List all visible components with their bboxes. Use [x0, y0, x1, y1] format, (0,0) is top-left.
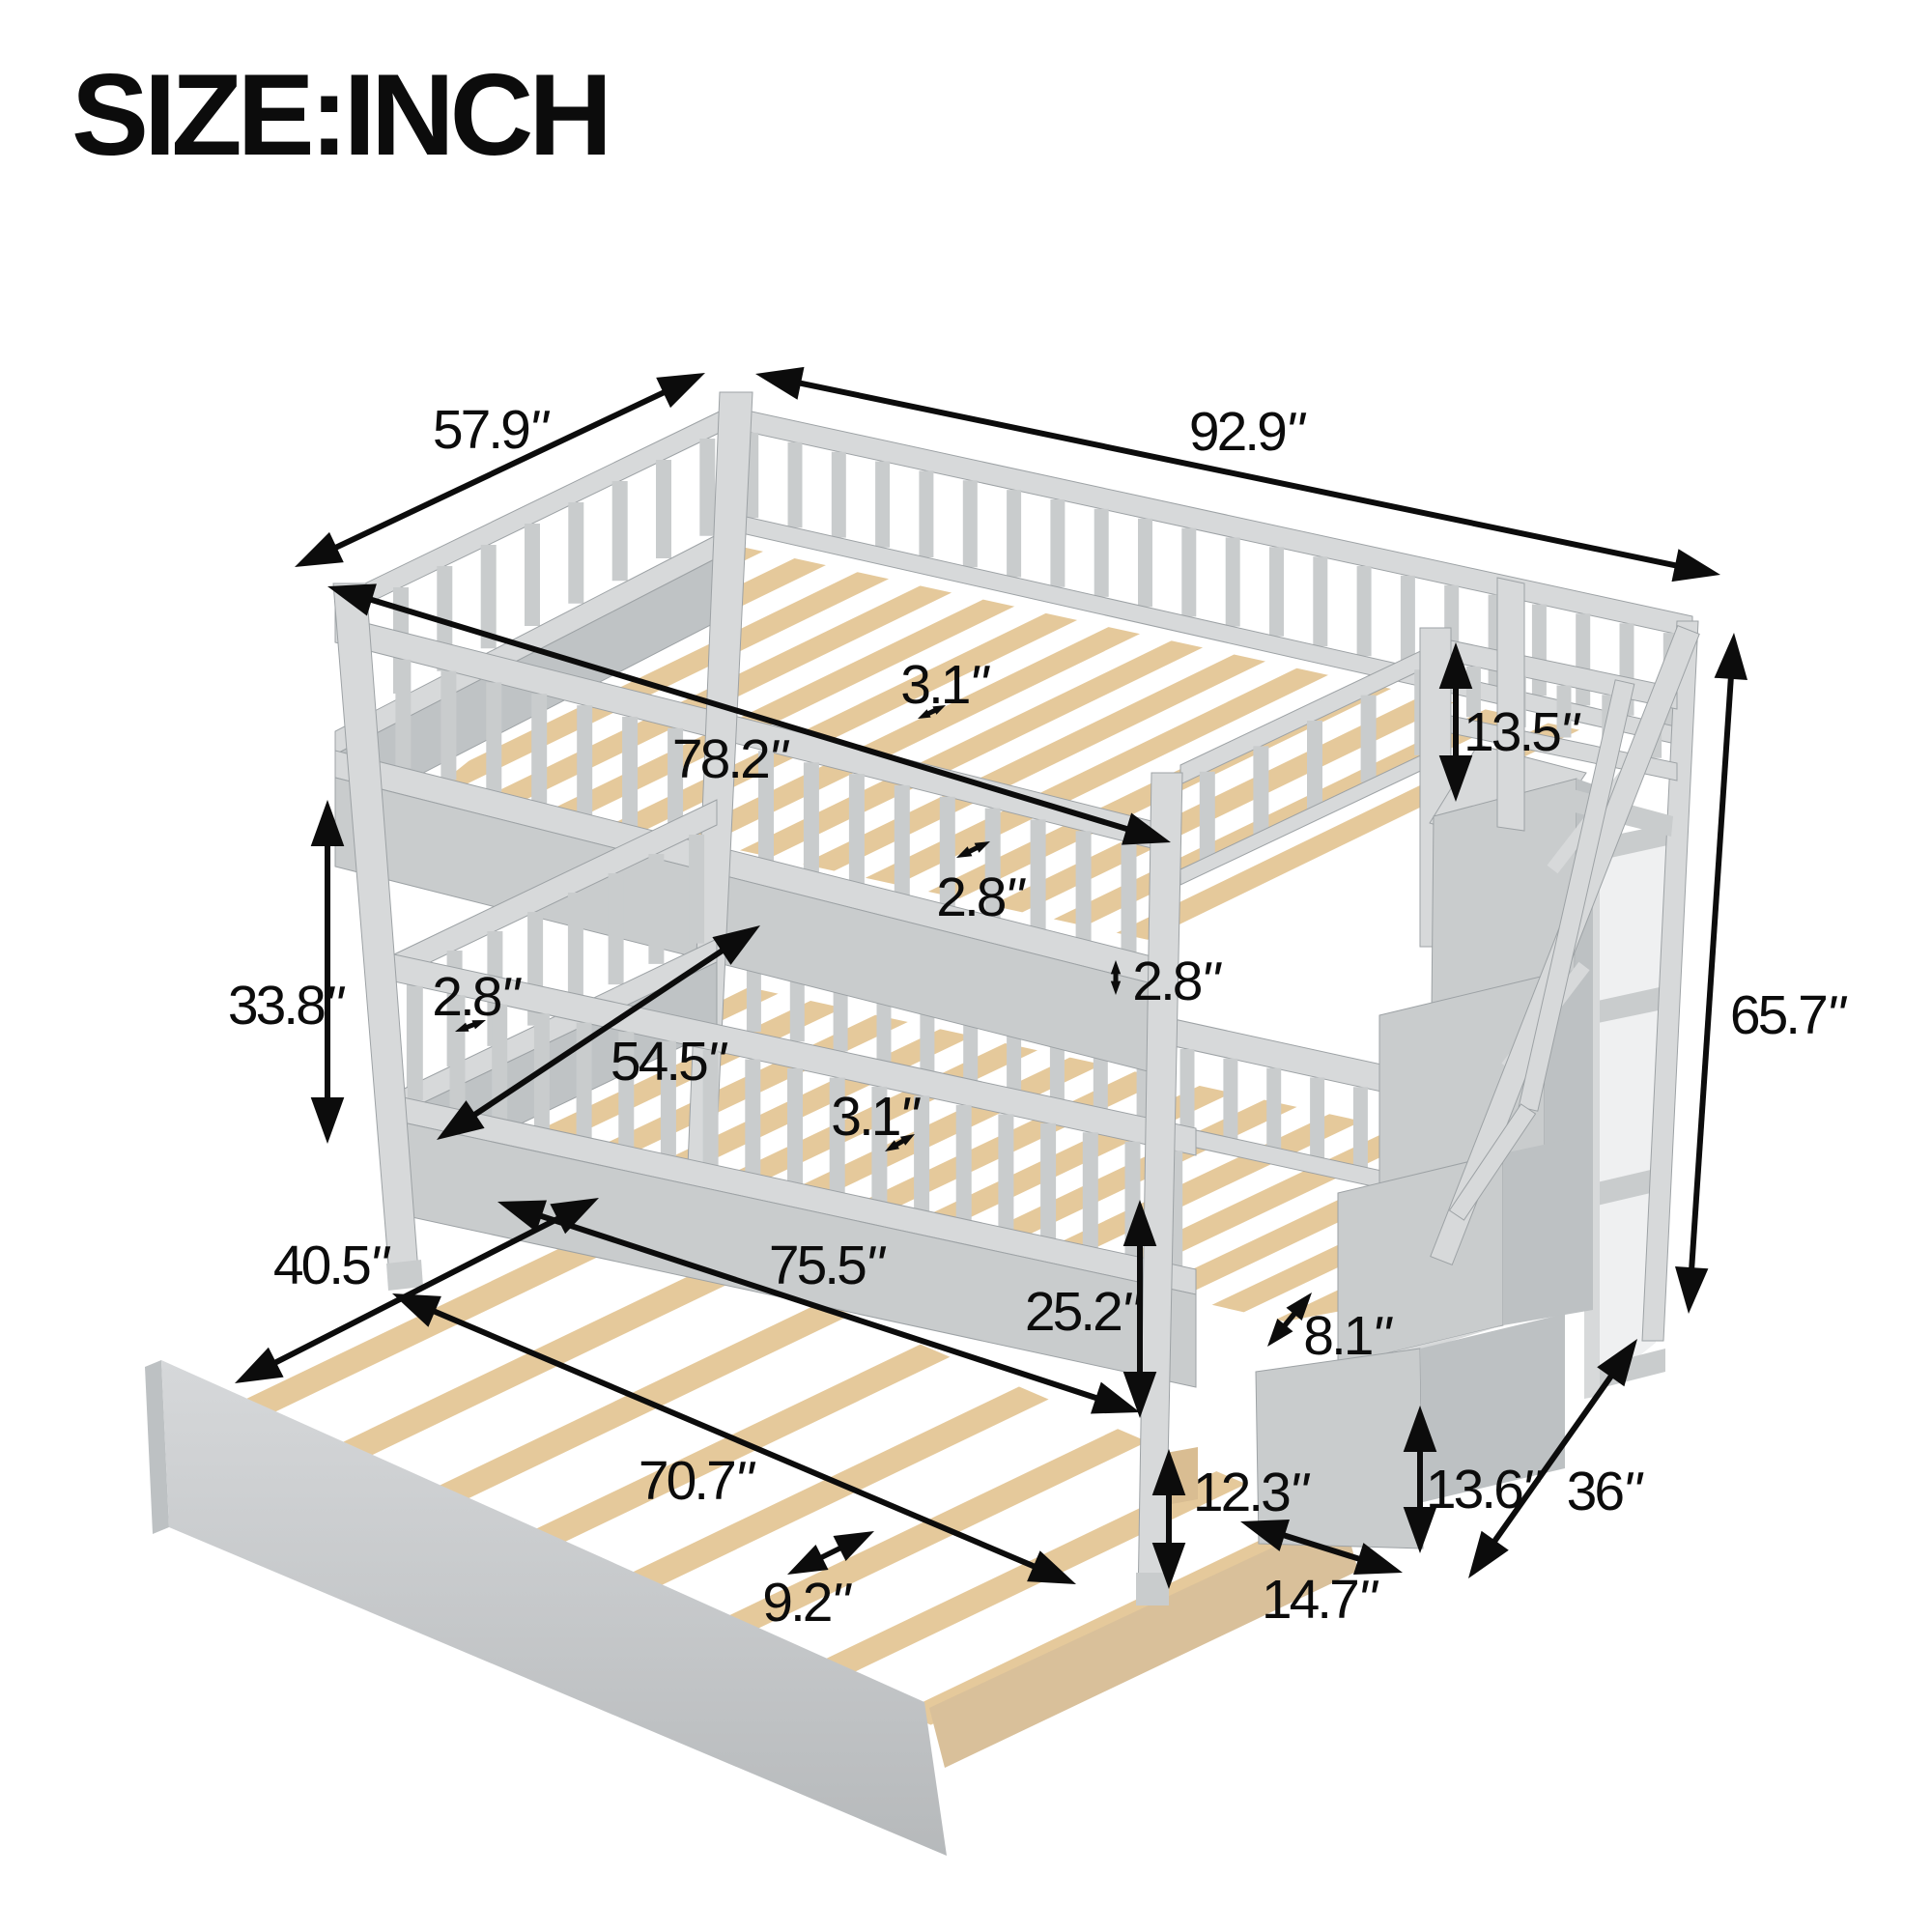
svg-text:9.2": 9.2"	[762, 1572, 852, 1634]
svg-text:65.7": 65.7"	[1730, 984, 1848, 1046]
svg-text:57.9": 57.9"	[433, 399, 551, 461]
svg-text:2.8": 2.8"	[1132, 951, 1222, 1012]
svg-text:SIZE:INCH: SIZE:INCH	[71, 50, 608, 180]
svg-text:92.9": 92.9"	[1189, 401, 1307, 463]
svg-text:36": 36"	[1567, 1461, 1644, 1522]
svg-text:78.2": 78.2"	[672, 728, 790, 790]
svg-text:8.1": 8.1"	[1303, 1305, 1393, 1367]
svg-text:14.7": 14.7"	[1262, 1569, 1379, 1631]
svg-text:3.1": 3.1"	[900, 654, 990, 716]
svg-text:40.5": 40.5"	[273, 1235, 391, 1296]
svg-text:2.8": 2.8"	[936, 867, 1026, 928]
svg-text:13.5": 13.5"	[1463, 701, 1581, 763]
svg-text:54.5": 54.5"	[611, 1031, 728, 1093]
svg-text:12.3": 12.3"	[1193, 1462, 1311, 1523]
svg-text:2.8": 2.8"	[432, 966, 522, 1028]
svg-text:25.2": 25.2"	[1025, 1281, 1143, 1343]
svg-text:33.8": 33.8"	[228, 975, 346, 1037]
svg-text:70.7": 70.7"	[639, 1450, 756, 1512]
svg-text:13.6": 13.6"	[1426, 1459, 1544, 1520]
svg-text:75.5": 75.5"	[769, 1235, 887, 1296]
